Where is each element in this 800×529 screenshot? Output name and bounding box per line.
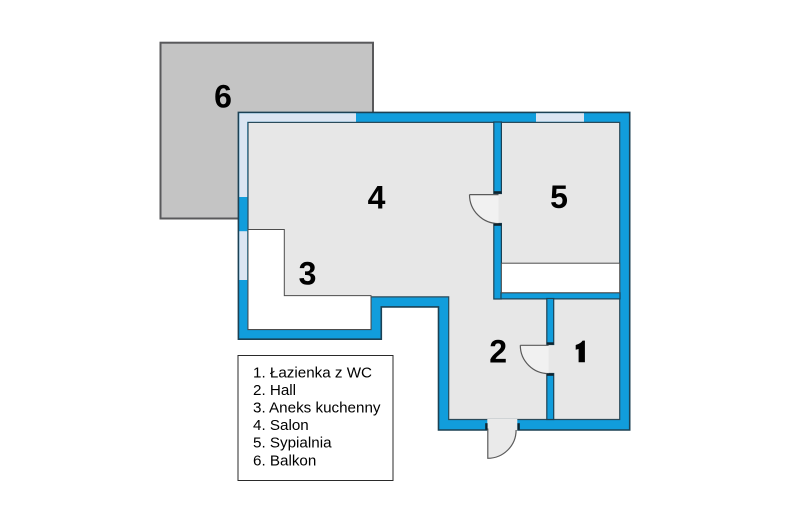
svg-text:4. Salon: 4. Salon xyxy=(253,417,309,434)
svg-text:5: 5 xyxy=(550,179,568,215)
svg-text:2. Hall: 2. Hall xyxy=(253,382,296,399)
svg-text:4: 4 xyxy=(368,179,386,215)
svg-text:2: 2 xyxy=(489,334,507,370)
svg-text:3: 3 xyxy=(299,255,317,291)
svg-text:6: 6 xyxy=(214,79,232,115)
svg-text:5. Sypialnia: 5. Sypialnia xyxy=(253,435,332,452)
svg-text:1. Łazienka z WC: 1. Łazienka z WC xyxy=(253,365,372,382)
svg-text:6. Balkon: 6. Balkon xyxy=(253,452,316,469)
svg-text:3. Aneks kuchenny: 3. Aneks kuchenny xyxy=(253,400,381,417)
